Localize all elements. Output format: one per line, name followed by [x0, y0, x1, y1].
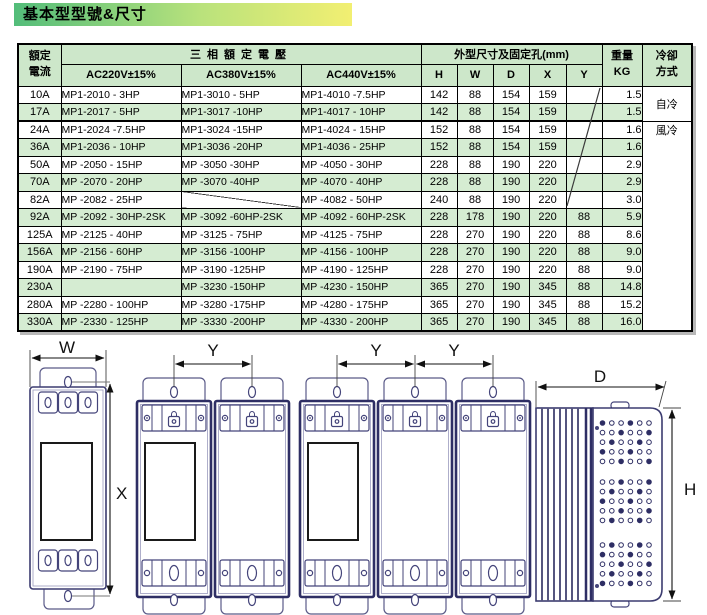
cell-dim-y — [566, 156, 602, 174]
col-header-y: Y — [566, 64, 602, 86]
cell-dim-w: 178 — [457, 209, 493, 227]
cell-dim-d: 190 — [493, 191, 529, 209]
cell-model-ac440: MP -4190 - 125HP — [301, 261, 421, 279]
cell-weight-kg: 8.6 — [602, 226, 642, 244]
cell-model-ac380: MP -3050 -30HP — [181, 156, 301, 174]
cell-dim-x: 159 — [529, 139, 566, 157]
cell-dim-y: 88 — [566, 296, 602, 314]
cell-model-ac380: MP1-3017 -10HP — [181, 104, 301, 122]
cell-model-ac440: MP -4280 - 175HP — [301, 296, 421, 314]
col-header-ac440: AC440V±15% — [301, 64, 421, 86]
nameplate-window — [41, 443, 92, 540]
spec-row-330A: 330AMP -2330 - 125HPMP -3330 -200HPMP -4… — [18, 314, 692, 332]
front-view-pair-group: Y — [137, 341, 289, 614]
cell-weight-kg: 1.5 — [602, 86, 642, 104]
cell-dim-w: 270 — [457, 226, 493, 244]
cell-dim-y — [566, 174, 602, 192]
cell-dim-x: 159 — [529, 86, 566, 104]
cell-model-ac380: MP1-3036 -20HP — [181, 139, 301, 157]
cell-dim-h: 228 — [421, 226, 457, 244]
dim-label-y3: Y — [448, 341, 459, 360]
cell-dim-d: 190 — [493, 314, 529, 332]
cell-model-ac220: MP -2156 - 60HP — [61, 244, 181, 262]
cell-model-ac440: MP -4082 - 50HP — [301, 191, 421, 209]
cell-model-ac220: MP -2070 - 20HP — [61, 174, 181, 192]
cell-model-ac440: MP -4230 - 150HP — [301, 279, 421, 297]
bottom-terminal-block — [39, 550, 98, 571]
cell-dim-x: 220 — [529, 209, 566, 227]
spec-row-230A: 230AMP -3230 -150HPMP -4230 - 150HP36527… — [18, 279, 692, 297]
cell-dim-x: 220 — [529, 174, 566, 192]
col-header-rated-current: 額定電流 — [18, 44, 61, 86]
rated-current-line2: 電流 — [29, 66, 51, 78]
weight-line1: 重量 — [611, 50, 633, 62]
cell-dim-x: 220 — [529, 226, 566, 244]
col-header-d: D — [493, 64, 529, 86]
cell-dim-d: 154 — [493, 104, 529, 122]
cell-dim-d: 154 — [493, 121, 529, 139]
cell-model-ac220: MP1-2036 - 10HP — [61, 139, 181, 157]
cell-rated-current: 92A — [18, 209, 61, 227]
col-header-voltage-group: 三相額定電壓 — [61, 44, 421, 64]
cell-dim-y: 88 — [566, 226, 602, 244]
cell-dim-x: 220 — [529, 191, 566, 209]
cell-weight-kg: 2.9 — [602, 174, 642, 192]
spec-row-17A: 17AMP1-2017 - 5HPMP1-3017 -10HPMP1-4017 … — [18, 104, 692, 122]
cell-model-ac440: MP -4330 - 200HP — [301, 314, 421, 332]
cell-model-ac220: MP -2125 - 40HP — [61, 226, 181, 244]
spec-table-body: 10AMP1-2010 - 3HPMP1-3010 - 5HPMP1-4010 … — [18, 86, 692, 331]
heatsink — [536, 408, 593, 601]
cell-dim-x: 345 — [529, 296, 566, 314]
cell-dim-y: 88 — [566, 279, 602, 297]
cell-dim-h: 228 — [421, 244, 457, 262]
spec-row-50A: 50AMP -2050 - 15HPMP -3050 -30HPMP -4050… — [18, 156, 692, 174]
page-title: 基本型型號&尺寸 — [14, 3, 352, 26]
col-header-w: W — [457, 64, 493, 86]
dim-label-d: D — [594, 367, 606, 386]
col-header-weight: 重量KG — [602, 44, 642, 86]
cell-model-ac220: MP -2082 - 25HP — [61, 191, 181, 209]
cell-model-ac380: MP1-3024 -15HP — [181, 121, 301, 139]
cell-dim-w: 270 — [457, 244, 493, 262]
catalog-page: 基本型型號&尺寸 額定電流 三相額定電壓 外型尺寸及固定孔(mm) 重量KG 冷… — [0, 0, 707, 615]
spec-row-24A: 24AMP1-2024 -7.5HPMP1-3024 -15HPMP1-4024… — [18, 121, 692, 139]
cell-rated-current: 230A — [18, 279, 61, 297]
cell-cooling-fan: 風冷 — [642, 121, 692, 331]
cell-model-ac220: MP -2190 - 75HP — [61, 261, 181, 279]
cell-dim-h: 228 — [421, 174, 457, 192]
cell-model-ac380: MP -3092 -60HP-2SK — [181, 209, 301, 227]
cell-model-ac440: MP1-4017 - 10HP — [301, 104, 421, 122]
cell-dim-h: 142 — [421, 86, 457, 104]
cell-model-ac220: MP1-2010 - 3HP — [61, 86, 181, 104]
cell-model-ac380: MP -3190 -125HP — [181, 261, 301, 279]
cell-dim-h: 240 — [421, 191, 457, 209]
cell-model-ac220: MP -2092 - 30HP-2SK — [61, 209, 181, 227]
front-view-trio-group: Y Y — [300, 341, 530, 614]
cell-dim-h: 228 — [421, 156, 457, 174]
dimension-drawings: W X Y Y Y — [0, 335, 707, 615]
cell-rated-current: 17A — [18, 104, 61, 122]
cell-dim-d: 190 — [493, 209, 529, 227]
cell-dim-x: 345 — [529, 314, 566, 332]
col-header-dimensions-group: 外型尺寸及固定孔(mm) — [421, 44, 602, 64]
cell-model-ac380: MP -3330 -200HP — [181, 314, 301, 332]
cell-model-ac440: MP -4070 - 40HP — [301, 174, 421, 192]
cell-dim-y: 88 — [566, 209, 602, 227]
cell-dim-d: 190 — [493, 261, 529, 279]
nameplate-window — [145, 443, 195, 540]
cell-dim-w: 88 — [457, 121, 493, 139]
cell-dim-d: 190 — [493, 296, 529, 314]
cell-dim-w: 88 — [457, 174, 493, 192]
cell-rated-current: 36A — [18, 139, 61, 157]
cell-model-ac380: MP -3156 -100HP — [181, 244, 301, 262]
cell-dim-d: 190 — [493, 279, 529, 297]
cell-dim-h: 365 — [421, 314, 457, 332]
spec-row-190A: 190AMP -2190 - 75HPMP -3190 -125HPMP -41… — [18, 261, 692, 279]
weight-line2: KG — [614, 66, 631, 78]
cell-model-ac440: MP1-4036 - 25HP — [301, 139, 421, 157]
dim-label-w: W — [59, 338, 75, 357]
col-header-ac380: AC380V±15% — [181, 64, 301, 86]
cell-model-ac440: MP1-4024 - 15HP — [301, 121, 421, 139]
cell-dim-w: 88 — [457, 191, 493, 209]
cell-weight-kg: 14.8 — [602, 279, 642, 297]
cell-model-ac380 — [181, 191, 301, 209]
cell-rated-current: 70A — [18, 174, 61, 192]
cell-weight-kg: 1.6 — [602, 121, 642, 139]
cell-dim-d: 154 — [493, 139, 529, 157]
cell-model-ac220: MP1-2017 - 5HP — [61, 104, 181, 122]
cell-dim-d: 190 — [493, 226, 529, 244]
rated-current-line1: 額定 — [29, 50, 51, 62]
cell-dim-h: 228 — [421, 261, 457, 279]
cell-weight-kg: 9.0 — [602, 244, 642, 262]
front-view-single-unit: W X — [30, 338, 127, 609]
cell-dim-y — [566, 191, 602, 209]
cell-dim-h: 152 — [421, 139, 457, 157]
dim-label-h: H — [684, 480, 696, 499]
cell-dim-y: 88 — [566, 314, 602, 332]
cell-weight-kg: 15.2 — [602, 296, 642, 314]
cell-dim-h: 365 — [421, 296, 457, 314]
cell-dim-h: 228 — [421, 209, 457, 227]
cell-model-ac440: MP1-4010 -7.5HP — [301, 86, 421, 104]
dim-label-y1: Y — [207, 341, 218, 360]
cell-dim-x: 220 — [529, 244, 566, 262]
cell-dim-x: 345 — [529, 279, 566, 297]
cell-dim-d: 154 — [493, 86, 529, 104]
cell-model-ac440: MP -4125 - 75HP — [301, 226, 421, 244]
spec-row-10A: 10AMP1-2010 - 3HPMP1-3010 - 5HPMP1-4010 … — [18, 86, 692, 104]
cell-model-ac220: MP -2280 - 100HP — [61, 296, 181, 314]
cell-rated-current: 82A — [18, 191, 61, 209]
cell-dim-w: 88 — [457, 139, 493, 157]
cell-weight-kg: 1.5 — [602, 104, 642, 122]
cell-dim-h: 142 — [421, 104, 457, 122]
spec-row-280A: 280AMP -2280 - 100HPMP -3280 -175HPMP -4… — [18, 296, 692, 314]
cell-model-ac440: MP -4092 - 60HP-2SK — [301, 209, 421, 227]
cell-dim-y — [566, 121, 602, 139]
cell-weight-kg: 2.9 — [602, 156, 642, 174]
col-header-h: H — [421, 64, 457, 86]
col-header-cooling: 冷卻方式 — [642, 44, 692, 86]
dim-label-x: X — [116, 484, 127, 503]
cell-dim-h: 152 — [421, 121, 457, 139]
cell-dim-w: 270 — [457, 261, 493, 279]
spec-row-36A: 36AMP1-2036 - 10HPMP1-3036 -20HPMP1-4036… — [18, 139, 692, 157]
spec-row-82A: 82AMP -2082 - 25HPMP -4082 - 50HP2408819… — [18, 191, 692, 209]
spec-row-92A: 92AMP -2092 - 30HP-2SKMP -3092 -60HP-2SK… — [18, 209, 692, 227]
cell-dim-x: 159 — [529, 104, 566, 122]
cell-cooling-self: 自冷 — [642, 86, 692, 121]
cell-model-ac220: MP1-2024 -7.5HP — [61, 121, 181, 139]
cell-dim-h: 365 — [421, 279, 457, 297]
cell-dim-d: 190 — [493, 174, 529, 192]
cell-model-ac220 — [61, 279, 181, 297]
cell-dim-d: 190 — [493, 156, 529, 174]
col-header-ac220: AC220V±15% — [61, 64, 181, 86]
cell-dim-w: 88 — [457, 104, 493, 122]
cell-model-ac440: MP -4050 - 30HP — [301, 156, 421, 174]
cell-dim-d: 190 — [493, 244, 529, 262]
cell-weight-kg: 1.6 — [602, 139, 642, 157]
cell-model-ac440: MP -4156 - 100HP — [301, 244, 421, 262]
spec-row-125A: 125AMP -2125 - 40HPMP -3125 - 75HPMP -41… — [18, 226, 692, 244]
cell-weight-kg: 16.0 — [602, 314, 642, 332]
cell-dim-y — [566, 104, 602, 122]
cell-dim-w: 270 — [457, 314, 493, 332]
cell-rated-current: 10A — [18, 86, 61, 104]
cell-dim-x: 159 — [529, 121, 566, 139]
cell-dim-w: 270 — [457, 279, 493, 297]
dim-label-y2: Y — [370, 341, 381, 360]
col-header-x: X — [529, 64, 566, 86]
spec-table: 額定電流 三相額定電壓 外型尺寸及固定孔(mm) 重量KG 冷卻方式 AC220… — [17, 43, 693, 332]
cell-weight-kg: 3.0 — [602, 191, 642, 209]
cell-dim-y — [566, 86, 602, 104]
cell-weight-kg: 5.9 — [602, 209, 642, 227]
cell-rated-current: 280A — [18, 296, 61, 314]
cell-dim-x: 220 — [529, 156, 566, 174]
cell-rated-current: 330A — [18, 314, 61, 332]
cell-rated-current: 190A — [18, 261, 61, 279]
cell-weight-kg: 9.0 — [602, 261, 642, 279]
cooling-line1: 冷卻 — [656, 50, 678, 62]
cell-model-ac220: MP -2330 - 125HP — [61, 314, 181, 332]
cell-dim-w: 270 — [457, 296, 493, 314]
cell-model-ac380: MP -3125 - 75HP — [181, 226, 301, 244]
cell-model-ac380: MP -3070 -40HP — [181, 174, 301, 192]
top-terminal-block — [39, 392, 98, 413]
cell-rated-current: 125A — [18, 226, 61, 244]
cell-rated-current: 50A — [18, 156, 61, 174]
cell-dim-y — [566, 139, 602, 157]
side-view-unit: D H — [536, 367, 696, 607]
spec-row-156A: 156AMP -2156 - 60HPMP -3156 -100HPMP -41… — [18, 244, 692, 262]
cell-model-ac380: MP -3280 -175HP — [181, 296, 301, 314]
cell-rated-current: 24A — [18, 121, 61, 139]
cell-model-ac220: MP -2050 - 15HP — [61, 156, 181, 174]
nameplate-window — [308, 443, 358, 540]
cell-dim-x: 220 — [529, 261, 566, 279]
spec-row-70A: 70AMP -2070 - 20HPMP -3070 -40HPMP -4070… — [18, 174, 692, 192]
cell-dim-y: 88 — [566, 261, 602, 279]
cooling-line2: 方式 — [656, 66, 678, 78]
cell-dim-w: 88 — [457, 86, 493, 104]
cell-dim-w: 88 — [457, 156, 493, 174]
cell-rated-current: 156A — [18, 244, 61, 262]
cell-model-ac380: MP1-3010 - 5HP — [181, 86, 301, 104]
cell-model-ac380: MP -3230 -150HP — [181, 279, 301, 297]
cell-dim-y: 88 — [566, 244, 602, 262]
